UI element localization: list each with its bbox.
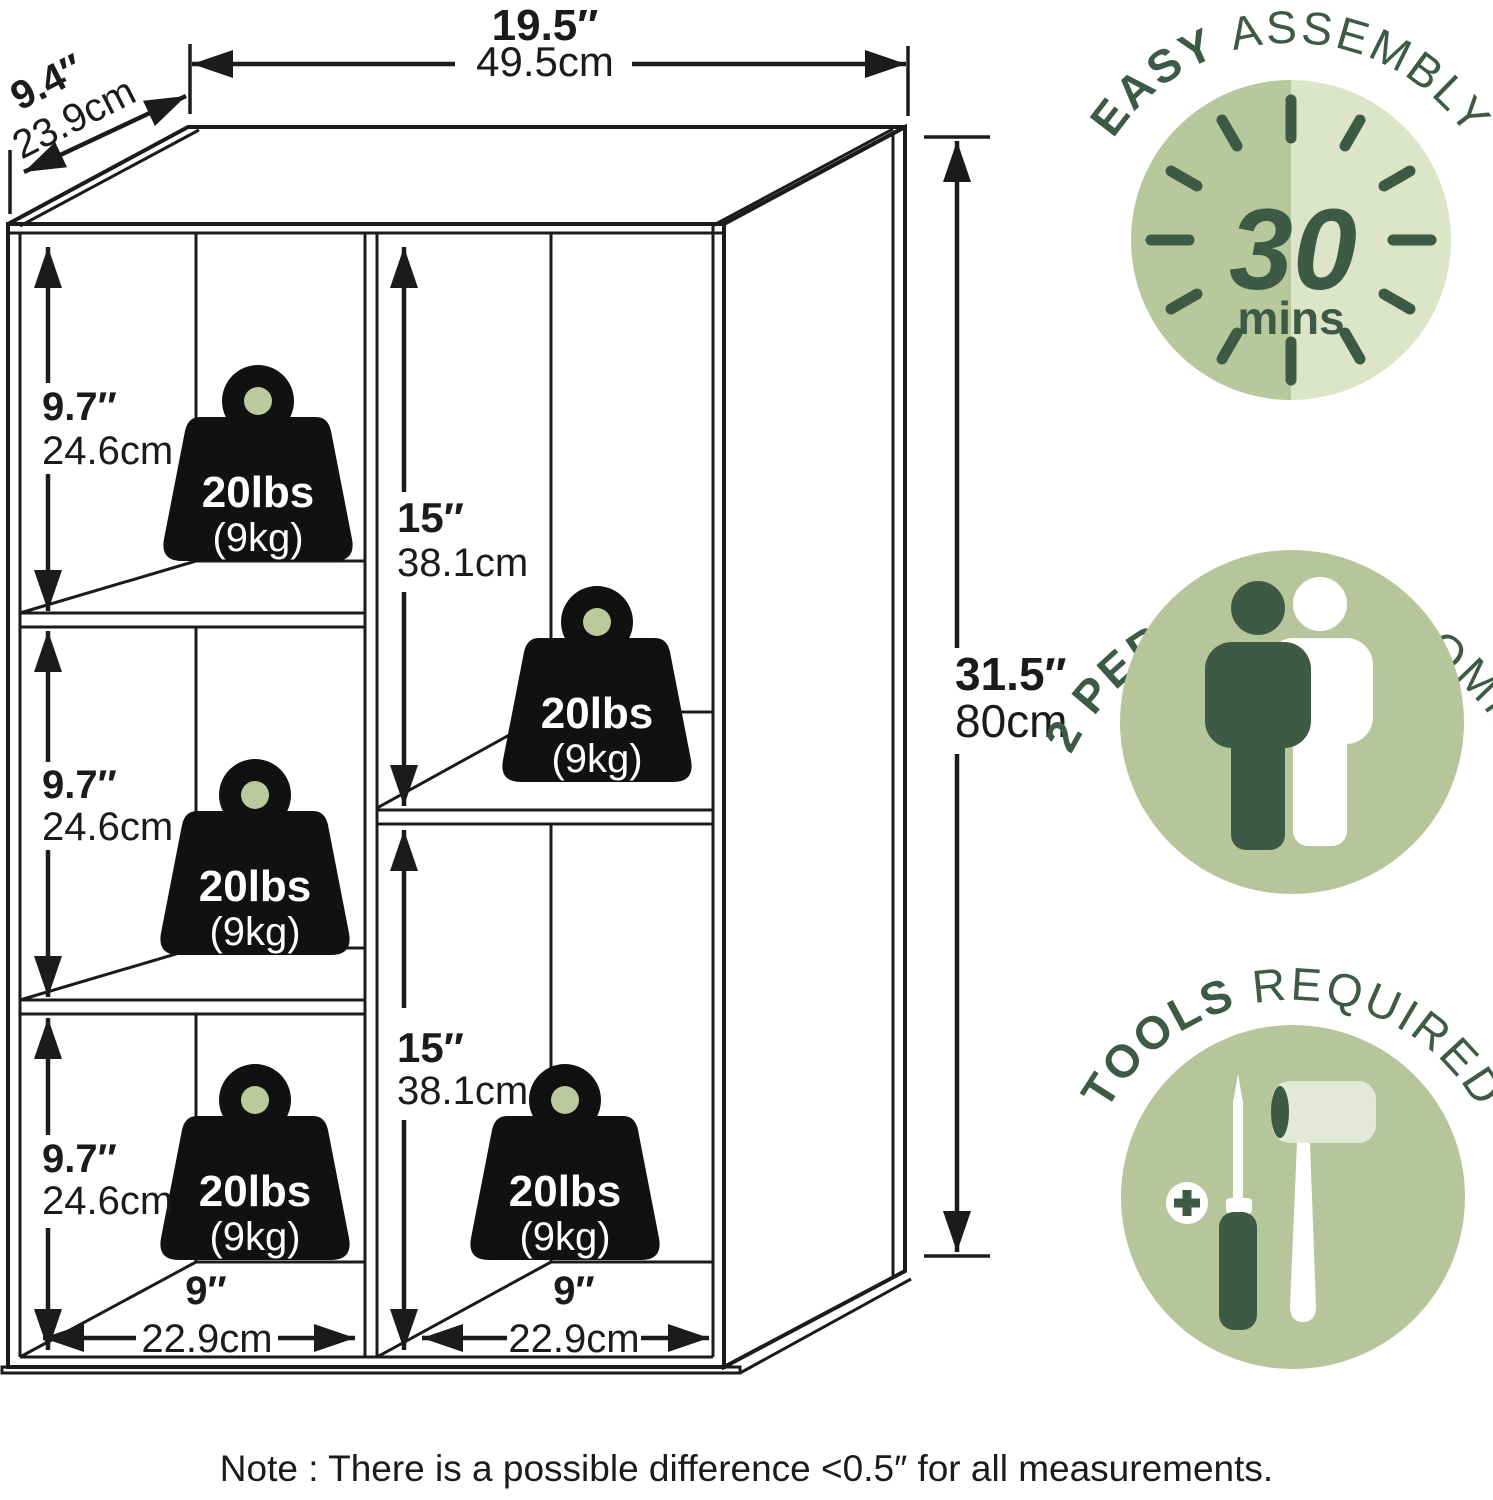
easy-assembly-badge: EASY ASSEMBLY 30 mins bbox=[1080, 1, 1493, 400]
weight-capacity-badge: 20lbs (9kg) bbox=[502, 586, 691, 782]
weight-kg: (9kg) bbox=[209, 1215, 300, 1259]
svg-text:15″: 15″ bbox=[397, 494, 464, 541]
cabinet-base bbox=[2, 1367, 740, 1373]
assembly-minutes-unit: mins bbox=[1237, 292, 1344, 344]
cell-width-dimension-left: 9″ 22.9cm bbox=[43, 1269, 355, 1361]
left-cell-height-dimension-1: 9.7″ 24.6cm bbox=[42, 247, 173, 611]
cell-width-dimension-right: 9″ 22.9cm bbox=[422, 1269, 709, 1361]
left-cell-height-dimension-3: 9.7″ 24.6cm bbox=[42, 1018, 173, 1350]
right-cell-height-dimension-2: 15″ 38.1cm bbox=[397, 830, 528, 1350]
weight-lbs: 20lbs bbox=[541, 689, 654, 738]
svg-text:22.9cm: 22.9cm bbox=[141, 1317, 272, 1361]
measurement-note: Note : There is a possible difference <0… bbox=[0, 1448, 1493, 1490]
svg-text:24.6cm: 24.6cm bbox=[42, 805, 173, 849]
weight-lbs: 20lbs bbox=[199, 1167, 312, 1216]
clock-icon: 30 mins bbox=[1131, 80, 1451, 400]
svg-text:24.6cm: 24.6cm bbox=[42, 429, 173, 473]
tools-required-badge: TOOLS REQUIRED bbox=[1071, 957, 1493, 1369]
cabinet-side-face bbox=[724, 127, 905, 1367]
cabinet-top-face bbox=[8, 127, 905, 224]
svg-text:15″: 15″ bbox=[397, 1024, 464, 1071]
diagram-svg: 20lbs (9kg) 20lbs (9kg) 20lbs (9kg) 20lb… bbox=[0, 0, 1493, 1500]
weight-kg: (9kg) bbox=[519, 1215, 610, 1259]
svg-text:38.1cm: 38.1cm bbox=[397, 1069, 528, 1113]
svg-text:9.7″: 9.7″ bbox=[42, 385, 117, 429]
right-cell-height-dimension-1: 15″ 38.1cm bbox=[397, 247, 528, 806]
weight-lbs: 20lbs bbox=[509, 1167, 622, 1216]
svg-text:9″: 9″ bbox=[185, 1269, 226, 1313]
svg-text:38.1cm: 38.1cm bbox=[397, 541, 528, 585]
weight-lbs: 20lbs bbox=[202, 468, 315, 517]
width-dimension: 19.5″ 49.5cm bbox=[190, 1, 908, 116]
height-dimension: 31.5″ 80cm bbox=[924, 137, 1067, 1256]
depth-dimension: 9.4″ 23.9cm bbox=[4, 46, 186, 214]
weight-lbs: 20lbs bbox=[199, 862, 312, 911]
svg-text:24.6cm: 24.6cm bbox=[42, 1179, 173, 1223]
weight-capacity-badge: 20lbs (9kg) bbox=[163, 365, 352, 561]
weight-capacity-badge: 20lbs (9kg) bbox=[160, 759, 349, 955]
phillips-plus-icon bbox=[1166, 1182, 1208, 1224]
weight-kg: (9kg) bbox=[209, 910, 300, 954]
height-inches: 31.5″ bbox=[955, 648, 1067, 700]
svg-text:9.7″: 9.7″ bbox=[42, 1137, 117, 1181]
weight-kg: (9kg) bbox=[212, 516, 303, 560]
two-persons-badge: 2 PERSONS RECOMM. bbox=[1034, 550, 1493, 894]
width-cm: 49.5cm bbox=[476, 38, 614, 85]
weight-kg: (9kg) bbox=[551, 737, 642, 781]
svg-text:22.9cm: 22.9cm bbox=[508, 1317, 639, 1361]
svg-text:9.7″: 9.7″ bbox=[42, 763, 117, 807]
svg-text:9″: 9″ bbox=[553, 1269, 594, 1313]
left-cell-height-dimension-2: 9.7″ 24.6cm bbox=[42, 631, 173, 997]
weight-capacity-badge: 20lbs (9kg) bbox=[160, 1064, 349, 1260]
product-dimension-infographic: 20lbs (9kg) 20lbs (9kg) 20lbs (9kg) 20lb… bbox=[0, 0, 1493, 1500]
